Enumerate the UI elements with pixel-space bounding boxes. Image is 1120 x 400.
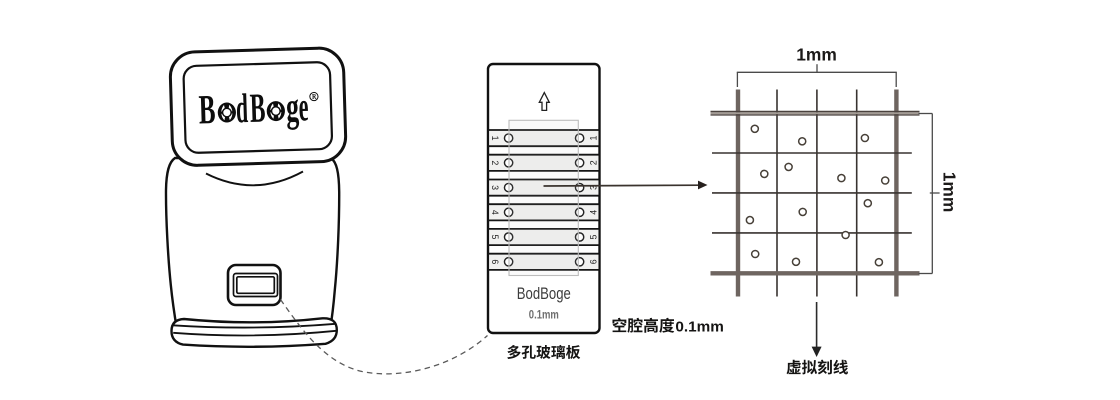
svg-text:BodBoge: BodBoge [517,284,571,303]
svg-text:1: 1 [490,136,500,141]
svg-text:0.1mm: 0.1mm [529,310,559,322]
svg-text:5: 5 [588,234,598,239]
svg-text:3: 3 [490,185,500,190]
svg-text:1mm: 1mm [796,44,837,64]
svg-text:6: 6 [588,259,598,264]
svg-text:1mm: 1mm [940,172,960,213]
svg-text:1: 1 [588,136,598,141]
svg-text:2: 2 [588,160,598,165]
svg-text:6: 6 [490,259,500,264]
svg-text:5: 5 [490,235,500,240]
svg-text:4: 4 [588,210,598,215]
svg-text:4: 4 [490,210,500,215]
svg-text:0.1mm: 0.1mm [675,318,724,335]
svg-text:2: 2 [490,160,500,165]
